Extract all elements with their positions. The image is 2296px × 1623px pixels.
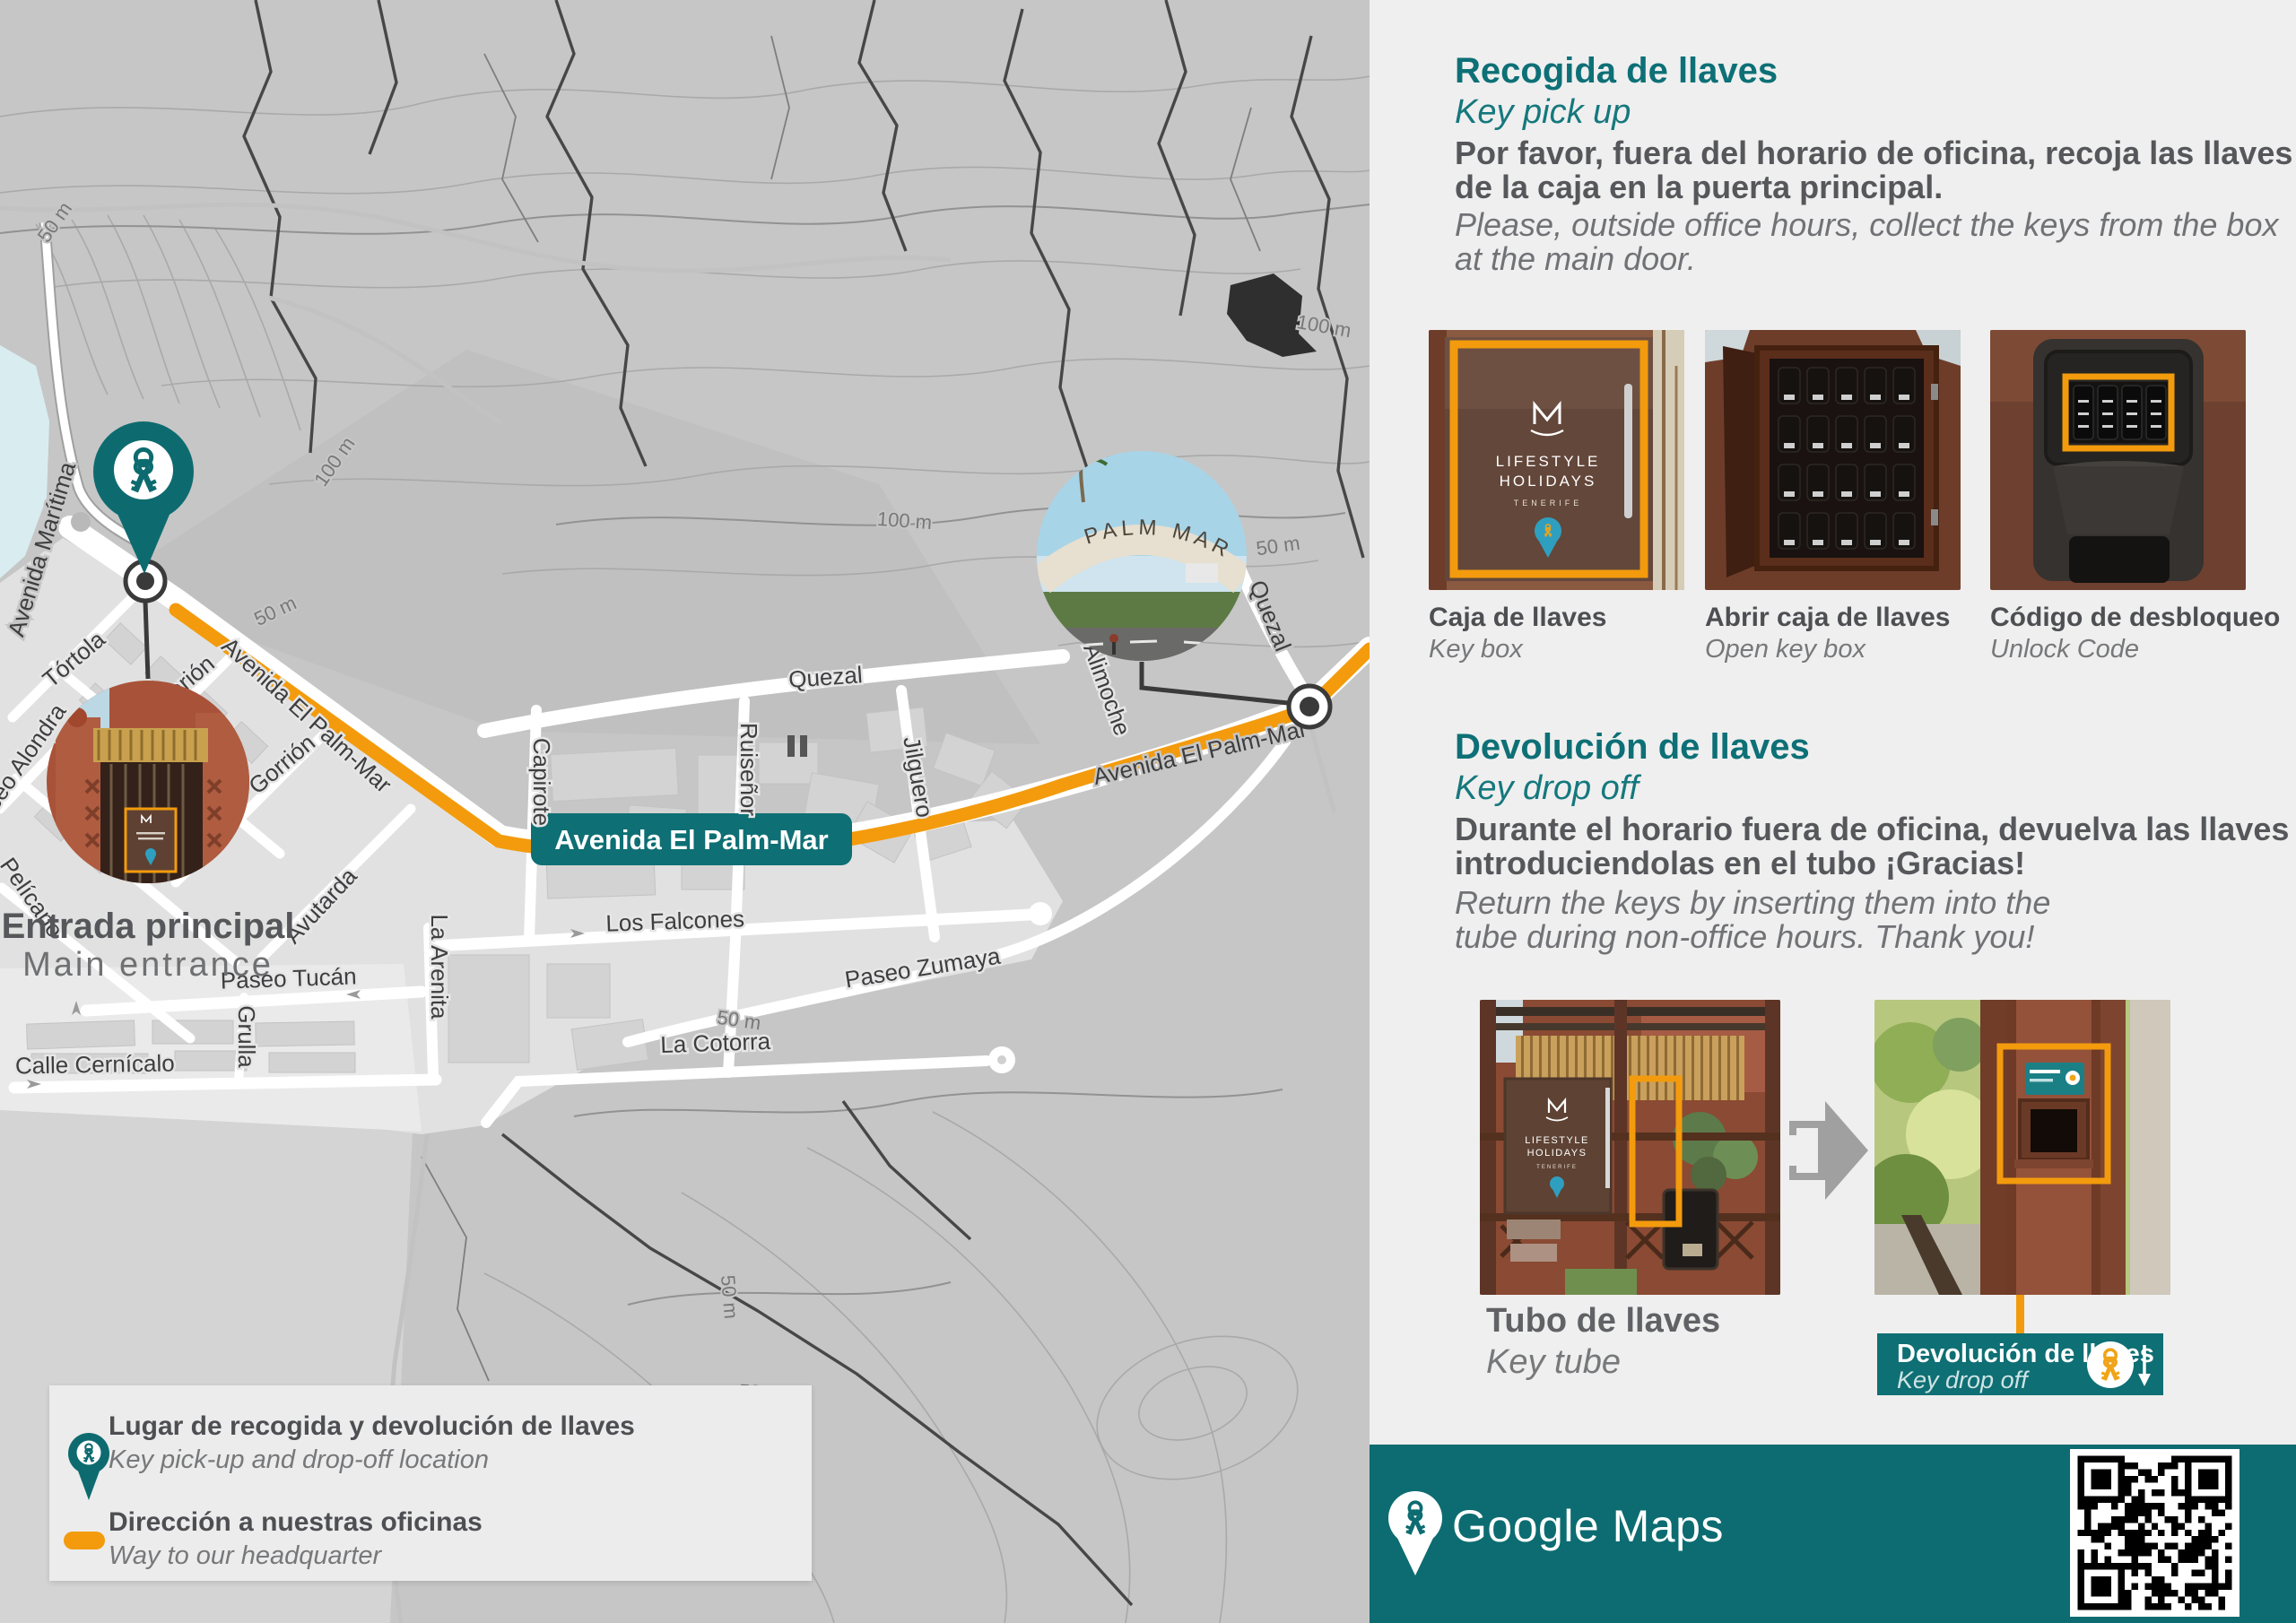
legend-item-route-subtitle: Way to our headquarter — [109, 1541, 790, 1572]
legend-item-pickup-subtitle: Key pick-up and drop-off location — [109, 1445, 790, 1476]
pickup-subtitle: Key pick up — [1455, 95, 1631, 131]
photo3-caption-en: Unlock Code — [1990, 635, 2139, 664]
pickup-title: Recogida de llaves — [1455, 52, 1778, 90]
target-marker-palm-mar — [1289, 686, 1330, 727]
legend-item-pickup-title: Lugar de recogida y devolución de llaves — [109, 1410, 790, 1443]
dropoff-title: Devolución de llaves — [1455, 728, 1810, 766]
entrance-sign — [126, 809, 176, 872]
badge-connector-line — [2016, 1295, 2024, 1336]
footer-bar: Google Maps — [1370, 1445, 2296, 1623]
dropoff-badge-subtitle: Key drop off — [1897, 1367, 2028, 1394]
street-label: Ruiseñor — [735, 723, 762, 816]
google-maps-pin-icon — [1384, 1489, 1447, 1584]
street-label: Capirote — [528, 738, 555, 826]
street-label: Quezal — [787, 661, 863, 693]
sign-line1: LIFESTYLE — [1496, 453, 1601, 470]
map-legend: Lugar de recogida y devolución de llaves… — [49, 1385, 812, 1581]
wayfinding-map: Avenida El Palm-Mar Avenida Marítima Tór… — [0, 0, 1370, 1623]
door-handle — [1624, 384, 1632, 518]
photo4-caption-es: Tubo de llaves — [1486, 1302, 1720, 1341]
sign-line1: LIFESTYLE — [1525, 1135, 1589, 1146]
entrance-label-es: Entrada principal — [2, 907, 295, 946]
legend-route-line-icon — [64, 1532, 105, 1549]
cul-de-sac — [1029, 902, 1052, 925]
route-badge: Avenida El Palm-Mar — [531, 813, 852, 865]
dropoff-badge-icons — [2085, 1340, 2157, 1390]
dropoff-sticker — [2025, 1063, 2084, 1095]
photo-key-box: LIFESTYLE HOLIDAYS TENERIFE — [1429, 330, 1684, 590]
footer-brand: Google Maps — [1452, 1500, 1724, 1552]
photo1-caption-en: Key box — [1429, 635, 1523, 664]
dropoff-body-en: Return the keys by inserting them into t… — [1455, 886, 2100, 954]
photo-tube-closeup — [1874, 1000, 2170, 1295]
entrance-label-en: Main entrance — [22, 946, 274, 984]
small-roundabout-center — [997, 1055, 1006, 1064]
gate-sign: LIFESTYLE HOLIDAYS TENERIFE — [1505, 1079, 1611, 1213]
dropoff-subtitle: Key drop off — [1455, 771, 1639, 807]
pickup-body-es: Por favor, fuera del horario de oficina,… — [1455, 136, 2296, 204]
photo2-caption-en: Open key box — [1705, 635, 1865, 664]
photo-open-key-box — [1705, 330, 1961, 590]
sign-line3: TENERIFE — [1514, 499, 1583, 508]
contour-label: 50 m — [717, 1274, 743, 1320]
photo4-caption-en: Key tube — [1486, 1343, 1621, 1382]
photo-key-tube: LIFESTYLE HOLIDAYS TENERIFE — [1480, 1000, 1780, 1295]
instruction-panel: Recogida de llaves Key pick up Por favor… — [1370, 0, 2296, 1623]
dropoff-body-es: Durante el horario fuera de oficina, dev… — [1455, 812, 2296, 881]
photo2-caption-es: Abrir caja de llaves — [1705, 603, 1951, 633]
qr-code — [2070, 1449, 2239, 1617]
route-badge-label: Avenida El Palm-Mar — [554, 824, 829, 855]
leaflet-page: Avenida El Palm-Mar Avenida Marítima Tór… — [0, 0, 2296, 1623]
pickup-body-en: Please, outside office hours, collect th… — [1455, 208, 2280, 276]
sign-line3: TENERIFE — [1536, 1165, 1578, 1170]
photo1-caption-es: Caja de llaves — [1429, 603, 1606, 633]
street-label: Los Falcones — [605, 905, 745, 936]
street-label: Calle Cernícalo — [15, 1049, 175, 1079]
photo-unlock-code — [1990, 330, 2246, 590]
street-label: Grulla — [233, 1005, 260, 1068]
arrow-right-icon — [1789, 1101, 1868, 1200]
sign-line2: HOLIDAYS — [1527, 1148, 1587, 1159]
dropoff-badge: Devolución de llaves Key drop off — [1877, 1333, 2163, 1395]
down-arrow-icon — [2138, 1345, 2151, 1386]
legend-item-route-title: Dirección a nuestras oficinas — [109, 1506, 790, 1539]
photo3-caption-es: Código de desbloqueo — [1990, 603, 2280, 633]
junction-dot — [71, 512, 91, 532]
tube-slot — [2014, 1100, 2093, 1168]
sign-line2: HOLIDAYS — [1500, 473, 1597, 490]
street-label: La Arenita — [426, 914, 453, 1020]
contour-label: 100 m — [876, 508, 933, 534]
